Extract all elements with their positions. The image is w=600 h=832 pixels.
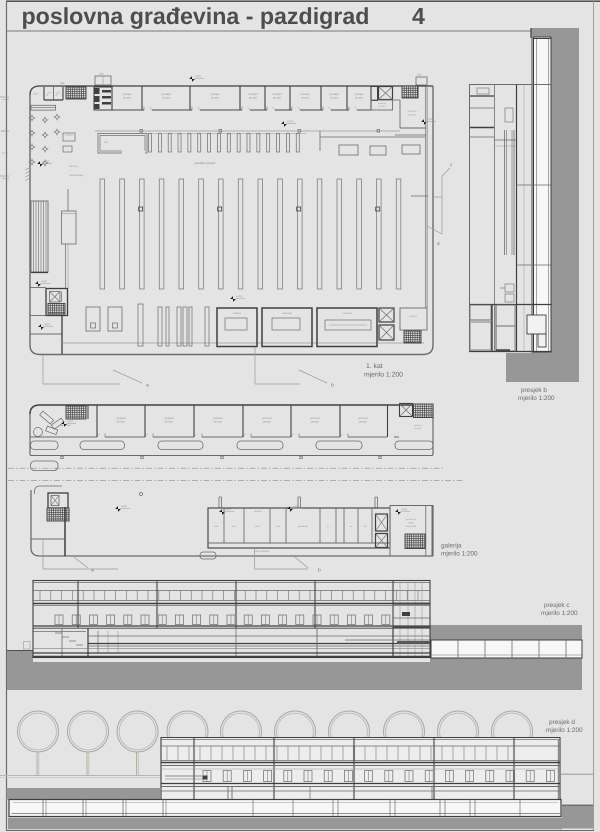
svg-text:b: b: [331, 383, 334, 389]
svg-text:restoran: restoran: [343, 312, 352, 315]
svg-text:prostor: prostor: [263, 421, 271, 424]
svg-text:dostava: dostava: [409, 315, 417, 318]
svg-text:+4,10: +4,10: [67, 420, 74, 423]
svg-text:odmor: odmor: [408, 522, 414, 525]
svg-text:+4,10: +4,10: [225, 508, 232, 511]
svg-text:ured: ured: [255, 525, 260, 528]
svg-text:zaposlenih: zaposlenih: [406, 525, 417, 528]
svg-text:prostor: prostor: [330, 97, 338, 100]
svg-text:galerija: galerija: [441, 543, 462, 550]
svg-text:prostor: prostor: [273, 97, 281, 100]
svg-text:prostor: prostor: [214, 421, 222, 424]
svg-text:prodajni prostor: prodajni prostor: [195, 161, 216, 165]
svg-text:prostor: prostor: [211, 97, 219, 100]
svg-text:4: 4: [412, 3, 425, 29]
svg-text:a: a: [91, 568, 94, 574]
svg-text:+4,10: +4,10: [287, 120, 294, 123]
svg-text:ured: ured: [276, 525, 281, 528]
svg-text:prostor za: prostor za: [406, 518, 417, 521]
svg-text:prostor: prostor: [311, 421, 319, 424]
svg-text:presjek d: presjek d: [549, 719, 575, 726]
svg-text:+4,10: +4,10: [44, 323, 51, 326]
svg-text:poslovna građevina - pazdigrad: poslovna građevina - pazdigrad: [22, 3, 370, 29]
svg-text:+4,10: +4,10: [401, 508, 408, 511]
svg-text:kafe bar: kafe bar: [69, 165, 78, 168]
svg-text:prostor: prostor: [359, 421, 367, 424]
svg-text:prostor: prostor: [123, 97, 131, 100]
svg-text:ulaz: ulaz: [60, 82, 65, 85]
svg-text:kafeterija: kafeterija: [282, 312, 292, 315]
svg-text:1. kat: 1. kat: [366, 363, 383, 370]
svg-text:samoposluga: samoposluga: [69, 174, 84, 177]
svg-text:mjerilo 1:200: mjerilo 1:200: [541, 610, 578, 617]
svg-text:mjerilo 1:200: mjerilo 1:200: [441, 551, 478, 558]
svg-text:+4,10: +4,10: [121, 505, 128, 508]
svg-text:prostor: prostor: [379, 105, 386, 108]
svg-text:ulaz: ulaz: [99, 73, 104, 76]
svg-text:prostor: prostor: [355, 97, 363, 100]
svg-text:čaj.: čaj.: [363, 525, 367, 528]
svg-text:prostor: prostor: [165, 421, 173, 424]
svg-text:prostor: prostor: [249, 97, 257, 100]
svg-text:garderoba: garderoba: [298, 525, 309, 528]
svg-text:kuhinja: kuhinja: [233, 312, 241, 315]
svg-text:prostor: prostor: [162, 97, 170, 100]
svg-text:+4,10: +4,10: [41, 280, 48, 283]
svg-text:ured: ured: [33, 93, 39, 96]
svg-text:a: a: [146, 383, 149, 389]
svg-text:ulaz: ulaz: [417, 74, 422, 77]
svg-text:mjerilo 1:200: mjerilo 1:200: [546, 727, 583, 734]
svg-text:poslovni: poslovni: [378, 102, 387, 105]
svg-text:ured: ured: [214, 525, 219, 528]
svg-text:b: b: [318, 568, 321, 574]
svg-text:mjerilo 1:200: mjerilo 1:200: [364, 371, 403, 378]
svg-text:+4,10: +4,10: [427, 118, 434, 121]
svg-text:+4,10: +4,10: [293, 505, 300, 508]
svg-text:info: info: [104, 141, 109, 144]
svg-text:prostor: prostor: [415, 427, 422, 430]
svg-text:ured voditelja: ured voditelja: [255, 550, 270, 553]
svg-text:prostor: prostor: [301, 97, 309, 100]
svg-text:+4,10: +4,10: [195, 75, 202, 78]
svg-text:presjek c: presjek c: [544, 602, 570, 609]
svg-text:uprava: uprava: [254, 510, 262, 513]
svg-text:prostor: prostor: [408, 114, 416, 117]
svg-text:presjek b: presjek b: [521, 387, 547, 394]
svg-text:prostor: prostor: [117, 421, 125, 424]
svg-text:poslovni: poslovni: [414, 424, 423, 427]
svg-text:mjerilo 1:200: mjerilo 1:200: [518, 395, 555, 402]
svg-text:ured: ured: [232, 525, 237, 528]
svg-text:+4,10: +4,10: [236, 295, 243, 298]
